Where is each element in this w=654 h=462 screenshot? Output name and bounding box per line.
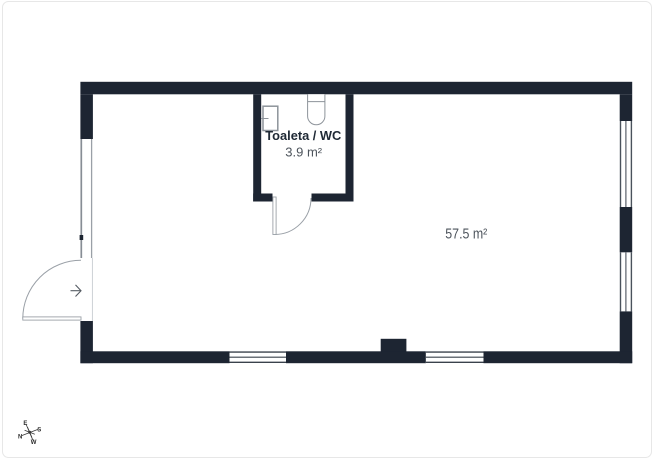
svg-text:E: E (23, 421, 27, 427)
svg-text:57.5 m²: 57.5 m² (445, 226, 487, 242)
svg-text:S: S (37, 427, 41, 433)
svg-text:N: N (18, 435, 22, 441)
svg-text:Toaleta / WC: Toaleta / WC (265, 128, 341, 143)
svg-text:W: W (31, 440, 37, 446)
svg-text:3.9 m²: 3.9 m² (285, 144, 323, 159)
